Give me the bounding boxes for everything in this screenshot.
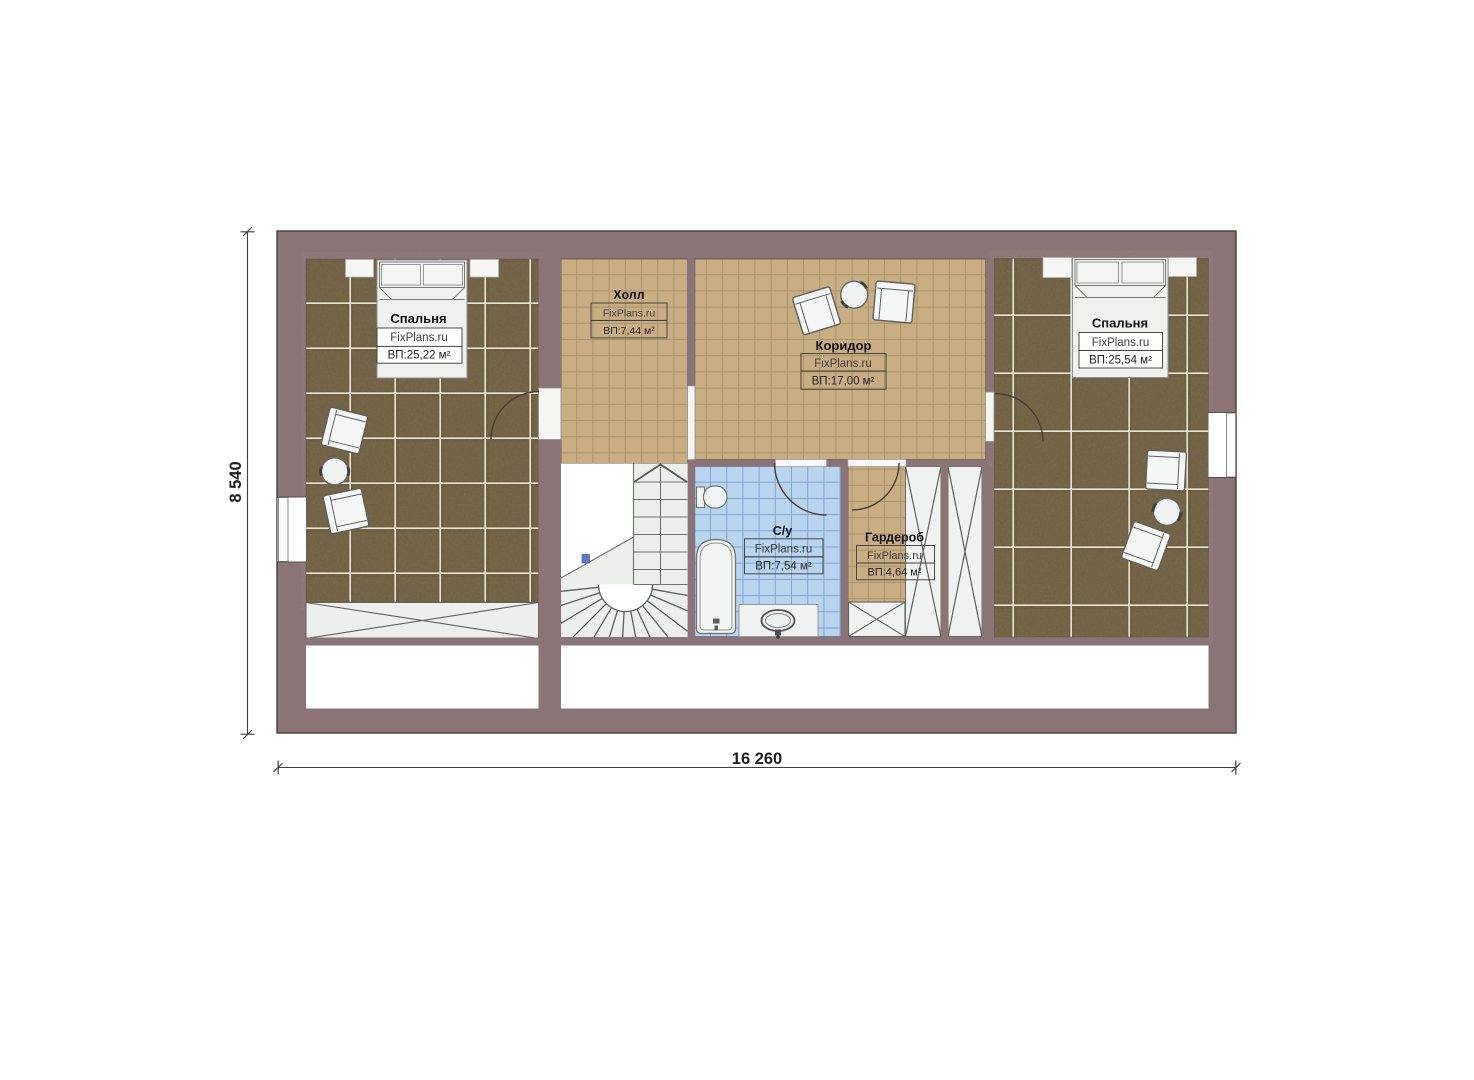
svg-text:Холл: Холл: [613, 288, 644, 302]
svg-text:ВП:7,54 м²: ВП:7,54 м²: [755, 561, 812, 573]
svg-text:Спальня: Спальня: [1092, 316, 1148, 331]
svg-text:FixPlans.ru: FixPlans.ru: [755, 544, 813, 556]
svg-text:FixPlans.ru: FixPlans.ru: [603, 308, 656, 320]
svg-text:Спальня: Спальня: [390, 311, 446, 326]
svg-text:ВП:7,44 м²: ВП:7,44 м²: [603, 325, 655, 337]
svg-text:ВП:25,22 м²: ВП:25,22 м²: [388, 350, 451, 362]
svg-text:ВП:25,54 м²: ВП:25,54 м²: [1089, 355, 1152, 367]
svg-text:FixPlans.ru: FixPlans.ru: [1092, 337, 1150, 349]
svg-text:ВП:17,00 м²: ВП:17,00 м²: [812, 376, 875, 388]
svg-text:ВП:4,64 м²: ВП:4,64 м²: [868, 567, 922, 579]
svg-text:С/у: С/у: [773, 524, 793, 538]
svg-text:Коридор: Коридор: [816, 338, 872, 353]
svg-text:8 540: 8 540: [227, 461, 245, 502]
svg-text:FixPlans.ru: FixPlans.ru: [867, 550, 922, 562]
svg-text:FixPlans.ru: FixPlans.ru: [390, 332, 448, 344]
svg-text:16 260: 16 260: [732, 750, 782, 768]
svg-text:Гардероб: Гардероб: [865, 531, 924, 545]
svg-text:FixPlans.ru: FixPlans.ru: [814, 358, 872, 370]
